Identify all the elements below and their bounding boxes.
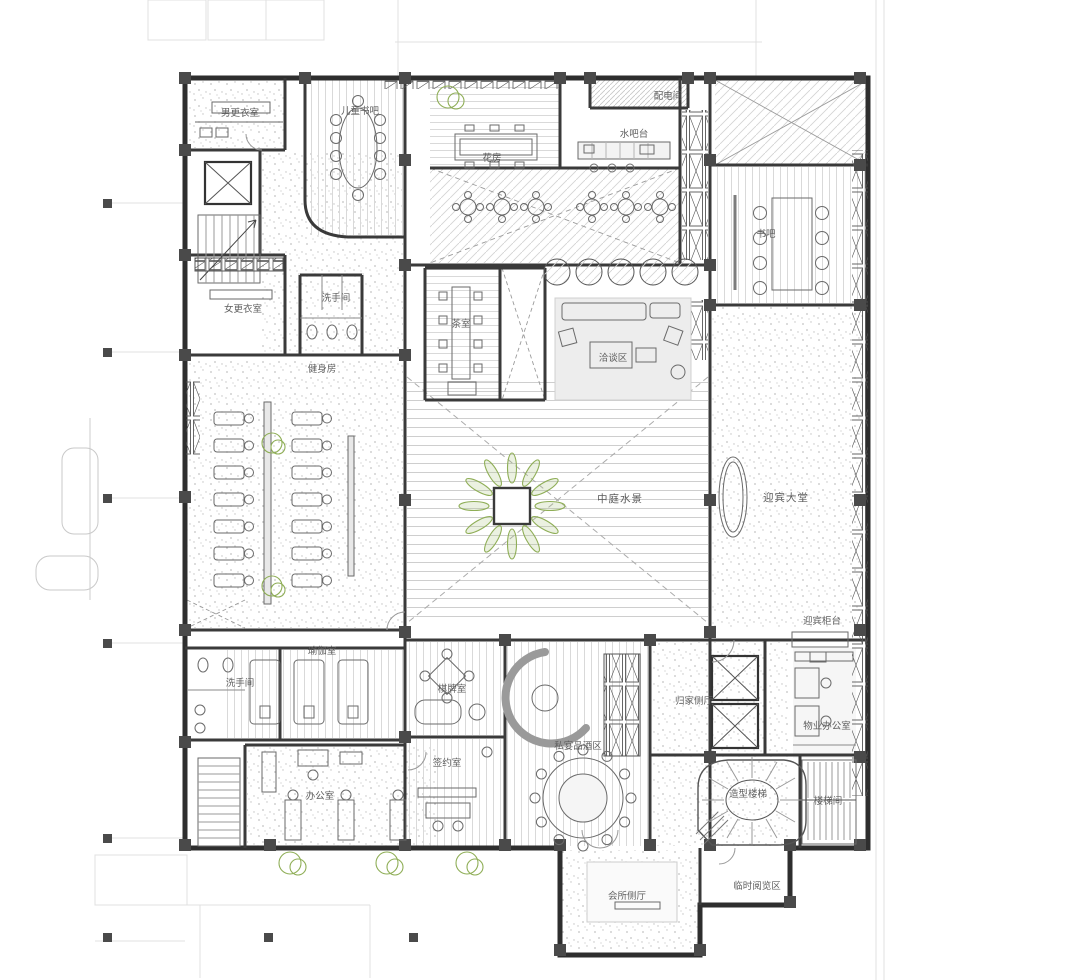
label-sculptural-stair: 造型楼梯 — [729, 788, 768, 800]
floor-plan-page: 男更衣室 儿童书吧 花房 配电间 水吧台 书吧 女更衣室 洗手间 健身房 茶室 … — [0, 0, 1080, 980]
label-stairwell: 楼梯间 — [814, 795, 843, 807]
floor-plan-canvas: 男更衣室 儿童书吧 花房 配电间 水吧台 书吧 女更衣室 洗手间 健身房 茶室 … — [0, 0, 1080, 980]
label-mens-locker: 男更衣室 — [221, 107, 259, 119]
label-reception-counter: 迎宾柜台 — [803, 615, 841, 627]
label-courtyard-water: 中庭水景 — [597, 492, 643, 505]
tree — [376, 852, 403, 875]
label-chess-room: 棋牌室 — [438, 683, 467, 695]
label-water-bar: 水吧台 — [620, 128, 649, 140]
label-signing-room: 签约室 — [433, 757, 462, 769]
label-tea-room: 茶室 — [451, 318, 470, 330]
label-power-room: 配电间 — [654, 90, 683, 102]
label-flower-house: 花房 — [482, 152, 501, 164]
label-office: 办公室 — [306, 790, 335, 802]
label-kids-book-bar: 儿童书吧 — [341, 105, 380, 117]
label-restroom-upper: 洗手间 — [322, 292, 351, 304]
tree — [456, 852, 483, 875]
label-club-side-hall: 会所侧厅 — [608, 890, 647, 902]
label-gym: 健身房 — [308, 363, 337, 375]
label-private-dining: 私宴品酒区 — [554, 740, 602, 752]
label-lobby: 迎宾大堂 — [763, 491, 809, 504]
label-homecoming-hall: 归家侧厅 — [675, 695, 714, 707]
tree — [279, 852, 306, 875]
label-womens-locker: 女更衣室 — [224, 303, 262, 315]
label-lounge: 洽谈区 — [599, 352, 628, 364]
label-property-office: 物业办公室 — [803, 720, 851, 732]
label-yoga-room: 瑜伽室 — [308, 645, 337, 657]
label-book-bar: 书吧 — [756, 229, 776, 240]
label-restroom-lower: 洗手间 — [226, 677, 255, 689]
label-temp-reading-area: 临时阅览区 — [733, 880, 781, 892]
